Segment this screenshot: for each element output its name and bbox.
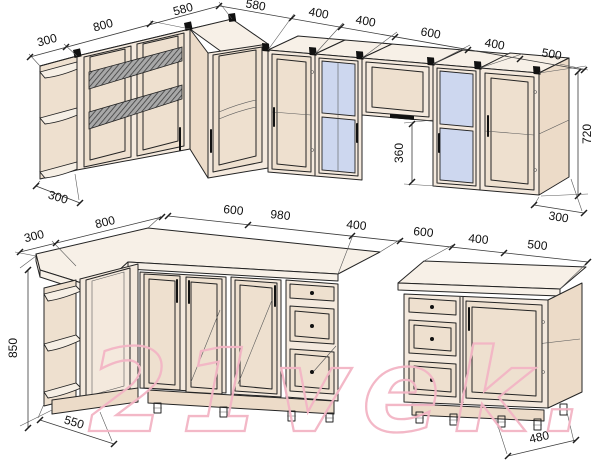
kitchen-technical-drawing: 300 800 580 580 400 400 600 400 500 360 … xyxy=(0,0,600,461)
dim-lower-run-980: 980 xyxy=(270,207,292,223)
dim-lower-run-500: 500 xyxy=(527,237,549,253)
watermark-text: 21vek.by xyxy=(88,325,600,459)
dim-upper-left-300: 300 xyxy=(35,31,58,50)
dim-upper-run-600: 600 xyxy=(420,24,442,41)
dim-upper-360: 360 xyxy=(392,143,406,163)
upper-end-shelf-unit xyxy=(40,56,82,179)
dim-upper-depth-right-300: 300 xyxy=(548,209,570,226)
dim-lower-run-400b: 400 xyxy=(468,231,490,247)
drawing-canvas: 300 800 580 580 400 400 600 400 500 360 … xyxy=(0,0,600,461)
lower-end-shelf-unit xyxy=(44,280,81,406)
upper-corner-cabinet xyxy=(190,19,268,178)
dim-upper-720: 720 xyxy=(580,124,594,144)
dim-lower-550: 550 xyxy=(63,413,87,432)
dim-upper-left-580: 580 xyxy=(171,0,194,18)
dim-upper-left-800: 800 xyxy=(91,16,114,35)
dim-upper-run-400b: 400 xyxy=(355,12,377,29)
dim-lower-run-400a: 400 xyxy=(346,217,368,233)
dim-upper-run-400a: 400 xyxy=(308,4,330,21)
dim-lower-850: 850 xyxy=(6,338,20,358)
dim-upper-run-580: 580 xyxy=(245,0,267,14)
dim-upper-run-400c: 400 xyxy=(484,35,506,52)
upper-cabinet-500-door xyxy=(480,53,569,195)
dim-upper-depth-left-300: 300 xyxy=(47,188,71,207)
dim-lower-run-600a: 600 xyxy=(223,202,245,218)
dim-lower-left-800: 800 xyxy=(94,213,117,232)
dim-lower-run-600b: 600 xyxy=(413,224,435,240)
dim-lower-left-300: 300 xyxy=(23,227,46,246)
